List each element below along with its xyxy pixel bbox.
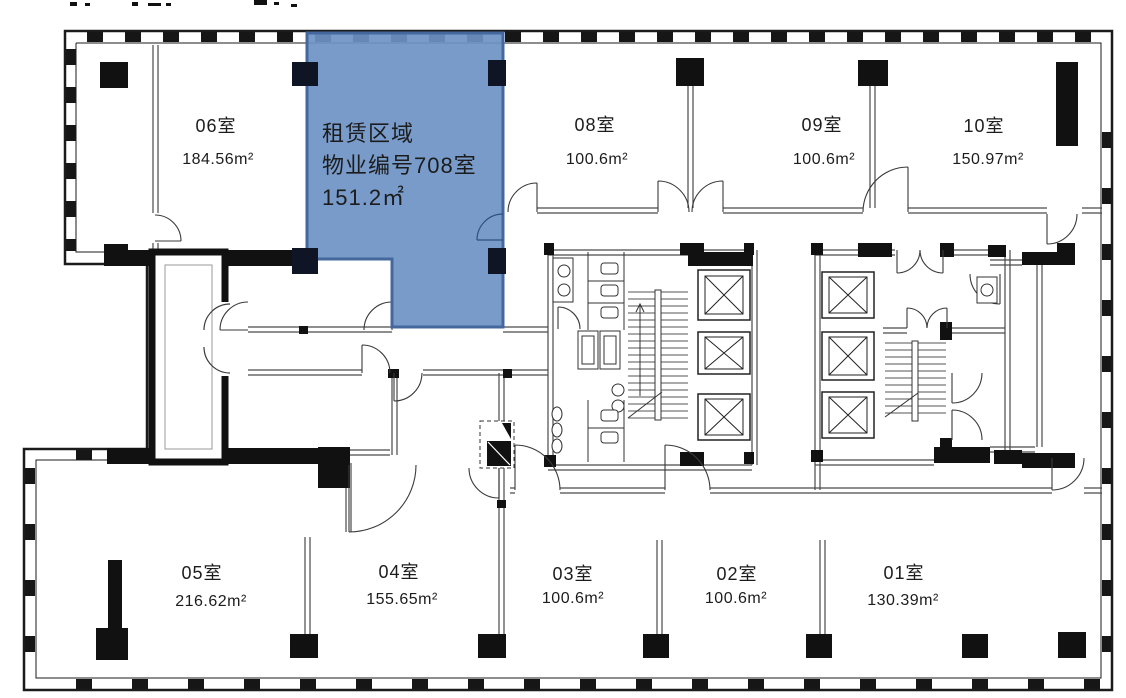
room-03-label: 03室	[552, 564, 593, 584]
interior-walls	[153, 45, 1102, 636]
stairs-left	[628, 290, 688, 420]
restroom-fixtures	[552, 252, 624, 462]
leased-area-property-number: 物业编号708室	[322, 153, 477, 178]
floor-plan-canvas: 租赁区域 物业编号708室 151.2㎡ 06室 184.56m² 08室 10…	[0, 0, 1126, 698]
room-02-area: 100.6m²	[705, 590, 767, 607]
leased-area-overlay[interactable]: 租赁区域 物业编号708室 151.2㎡	[292, 33, 506, 327]
elevator-icon	[698, 394, 750, 440]
room-05-area: 216.62m²	[175, 593, 247, 610]
room-06-label: 06室	[195, 116, 236, 136]
room-09-area: 100.6m²	[793, 151, 855, 168]
elevator-icon	[822, 272, 874, 318]
room-08-area: 100.6m²	[566, 151, 628, 168]
shaft-room	[152, 252, 232, 462]
elevator-shafts	[698, 270, 874, 440]
room-10-area: 150.97m²	[952, 151, 1024, 168]
elevator-icon	[822, 332, 874, 380]
cutoff-caption-fragments	[70, 0, 297, 7]
room-04-label: 04室	[378, 562, 419, 582]
leased-area-polygon[interactable]	[307, 33, 503, 327]
elevator-icon	[698, 332, 750, 374]
room-05-label: 05室	[181, 563, 222, 583]
room-04-area: 155.65m²	[366, 591, 438, 608]
room-10-label: 10室	[963, 116, 1004, 136]
room-01-area: 130.39m²	[867, 592, 939, 609]
floor-plan-page: 租赁区域 物业编号708室 151.2㎡ 06室 184.56m² 08室 10…	[0, 0, 1126, 698]
room-02-label: 02室	[716, 564, 757, 584]
elevator-icon	[822, 392, 874, 438]
leased-area-title: 租赁区域	[322, 121, 414, 146]
room-06-area: 184.56m²	[182, 151, 254, 168]
room-03-area: 100.6m²	[542, 590, 604, 607]
elevator-icon	[698, 270, 750, 320]
room-09-label: 09室	[801, 115, 842, 135]
stairs-right	[885, 341, 946, 421]
room-08-label: 08室	[574, 115, 615, 135]
room-01-label: 01室	[883, 563, 924, 583]
leased-area-size: 151.2㎡	[322, 185, 405, 210]
